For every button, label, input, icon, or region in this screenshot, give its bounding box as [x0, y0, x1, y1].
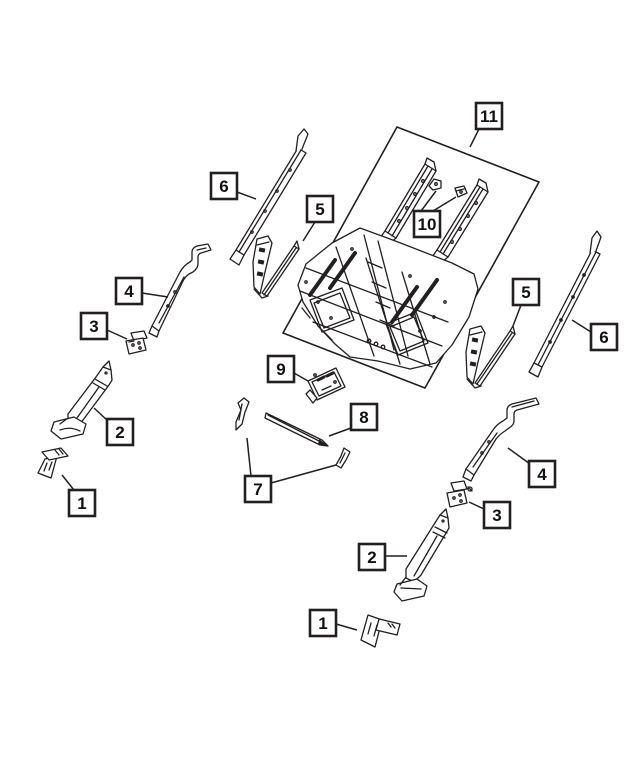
part-5-left — [253, 236, 299, 298]
callout-label: 9 — [276, 360, 285, 379]
part-2-left — [51, 361, 112, 439]
leader-6-left — [237, 192, 256, 199]
callout-label: 3 — [89, 317, 98, 336]
callout-5-right[interactable]: 5 — [513, 279, 539, 305]
part-2-right — [394, 509, 449, 601]
callout-label: 1 — [77, 494, 86, 513]
callout-label: 6 — [219, 177, 228, 196]
part-1-right — [361, 615, 400, 647]
callout-8[interactable]: 8 — [351, 404, 377, 430]
leader-1-left — [62, 475, 74, 490]
callout-6-right[interactable]: 6 — [591, 324, 617, 350]
callout-label: 6 — [599, 328, 608, 347]
leader-7a — [247, 438, 251, 476]
callout-4-right[interactable]: 4 — [529, 461, 555, 487]
callout-label: 4 — [537, 465, 547, 484]
part-8 — [265, 413, 328, 446]
leader-11 — [470, 129, 479, 147]
part-1-left — [38, 448, 68, 478]
part-7-blade-a — [236, 398, 249, 430]
callout-label: 2 — [115, 423, 124, 442]
callout-3-left[interactable]: 3 — [81, 313, 107, 339]
callout-6-left[interactable]: 6 — [211, 173, 237, 199]
part-9 — [306, 368, 345, 403]
callout-label: 4 — [124, 282, 134, 301]
parts-diagram-canvas: 11 10 6 5 4 3 2 1 — [0, 0, 640, 777]
callout-1-right[interactable]: 1 — [310, 610, 336, 636]
leader-4-right — [508, 448, 530, 464]
callout-label: 10 — [418, 215, 437, 234]
callout-1-left[interactable]: 1 — [69, 490, 95, 516]
callout-4-left[interactable]: 4 — [116, 278, 142, 304]
leader-7b — [271, 465, 336, 483]
part-5-right — [466, 326, 515, 388]
part-4-right — [463, 398, 539, 481]
leader-6-right — [572, 320, 591, 332]
leader-4-left — [142, 293, 168, 297]
callout-7[interactable]: 7 — [245, 476, 271, 502]
part-7-blade-b — [336, 448, 350, 468]
part-3-left — [126, 331, 147, 354]
callout-label: 3 — [492, 506, 501, 525]
callout-9[interactable]: 9 — [268, 356, 294, 382]
callout-label: 5 — [521, 283, 530, 302]
part-3-right — [447, 481, 472, 507]
callout-label: 7 — [253, 480, 262, 499]
callout-label: 11 — [480, 107, 498, 126]
leader-9 — [294, 373, 308, 381]
part-4-left — [149, 244, 211, 337]
callout-3-right[interactable]: 3 — [484, 502, 510, 528]
callout-11[interactable]: 11 — [476, 103, 502, 129]
leader-1-right — [336, 624, 357, 630]
callout-5-left[interactable]: 5 — [307, 196, 333, 222]
callout-label: 2 — [367, 548, 376, 567]
leader-3-right — [469, 502, 484, 509]
leader-3-left — [107, 330, 127, 339]
callout-label: 1 — [318, 614, 327, 633]
leader-5-right — [513, 305, 521, 326]
callout-2-left[interactable]: 2 — [107, 419, 133, 445]
callout-label: 8 — [359, 408, 368, 427]
leader-5-left — [303, 222, 315, 241]
callout-2-right[interactable]: 2 — [359, 544, 385, 570]
callout-label: 5 — [315, 200, 324, 219]
parts-diagram: 11 10 6 5 4 3 2 1 — [0, 0, 640, 777]
callout-10[interactable]: 10 — [414, 211, 440, 237]
leader-8 — [329, 428, 351, 436]
